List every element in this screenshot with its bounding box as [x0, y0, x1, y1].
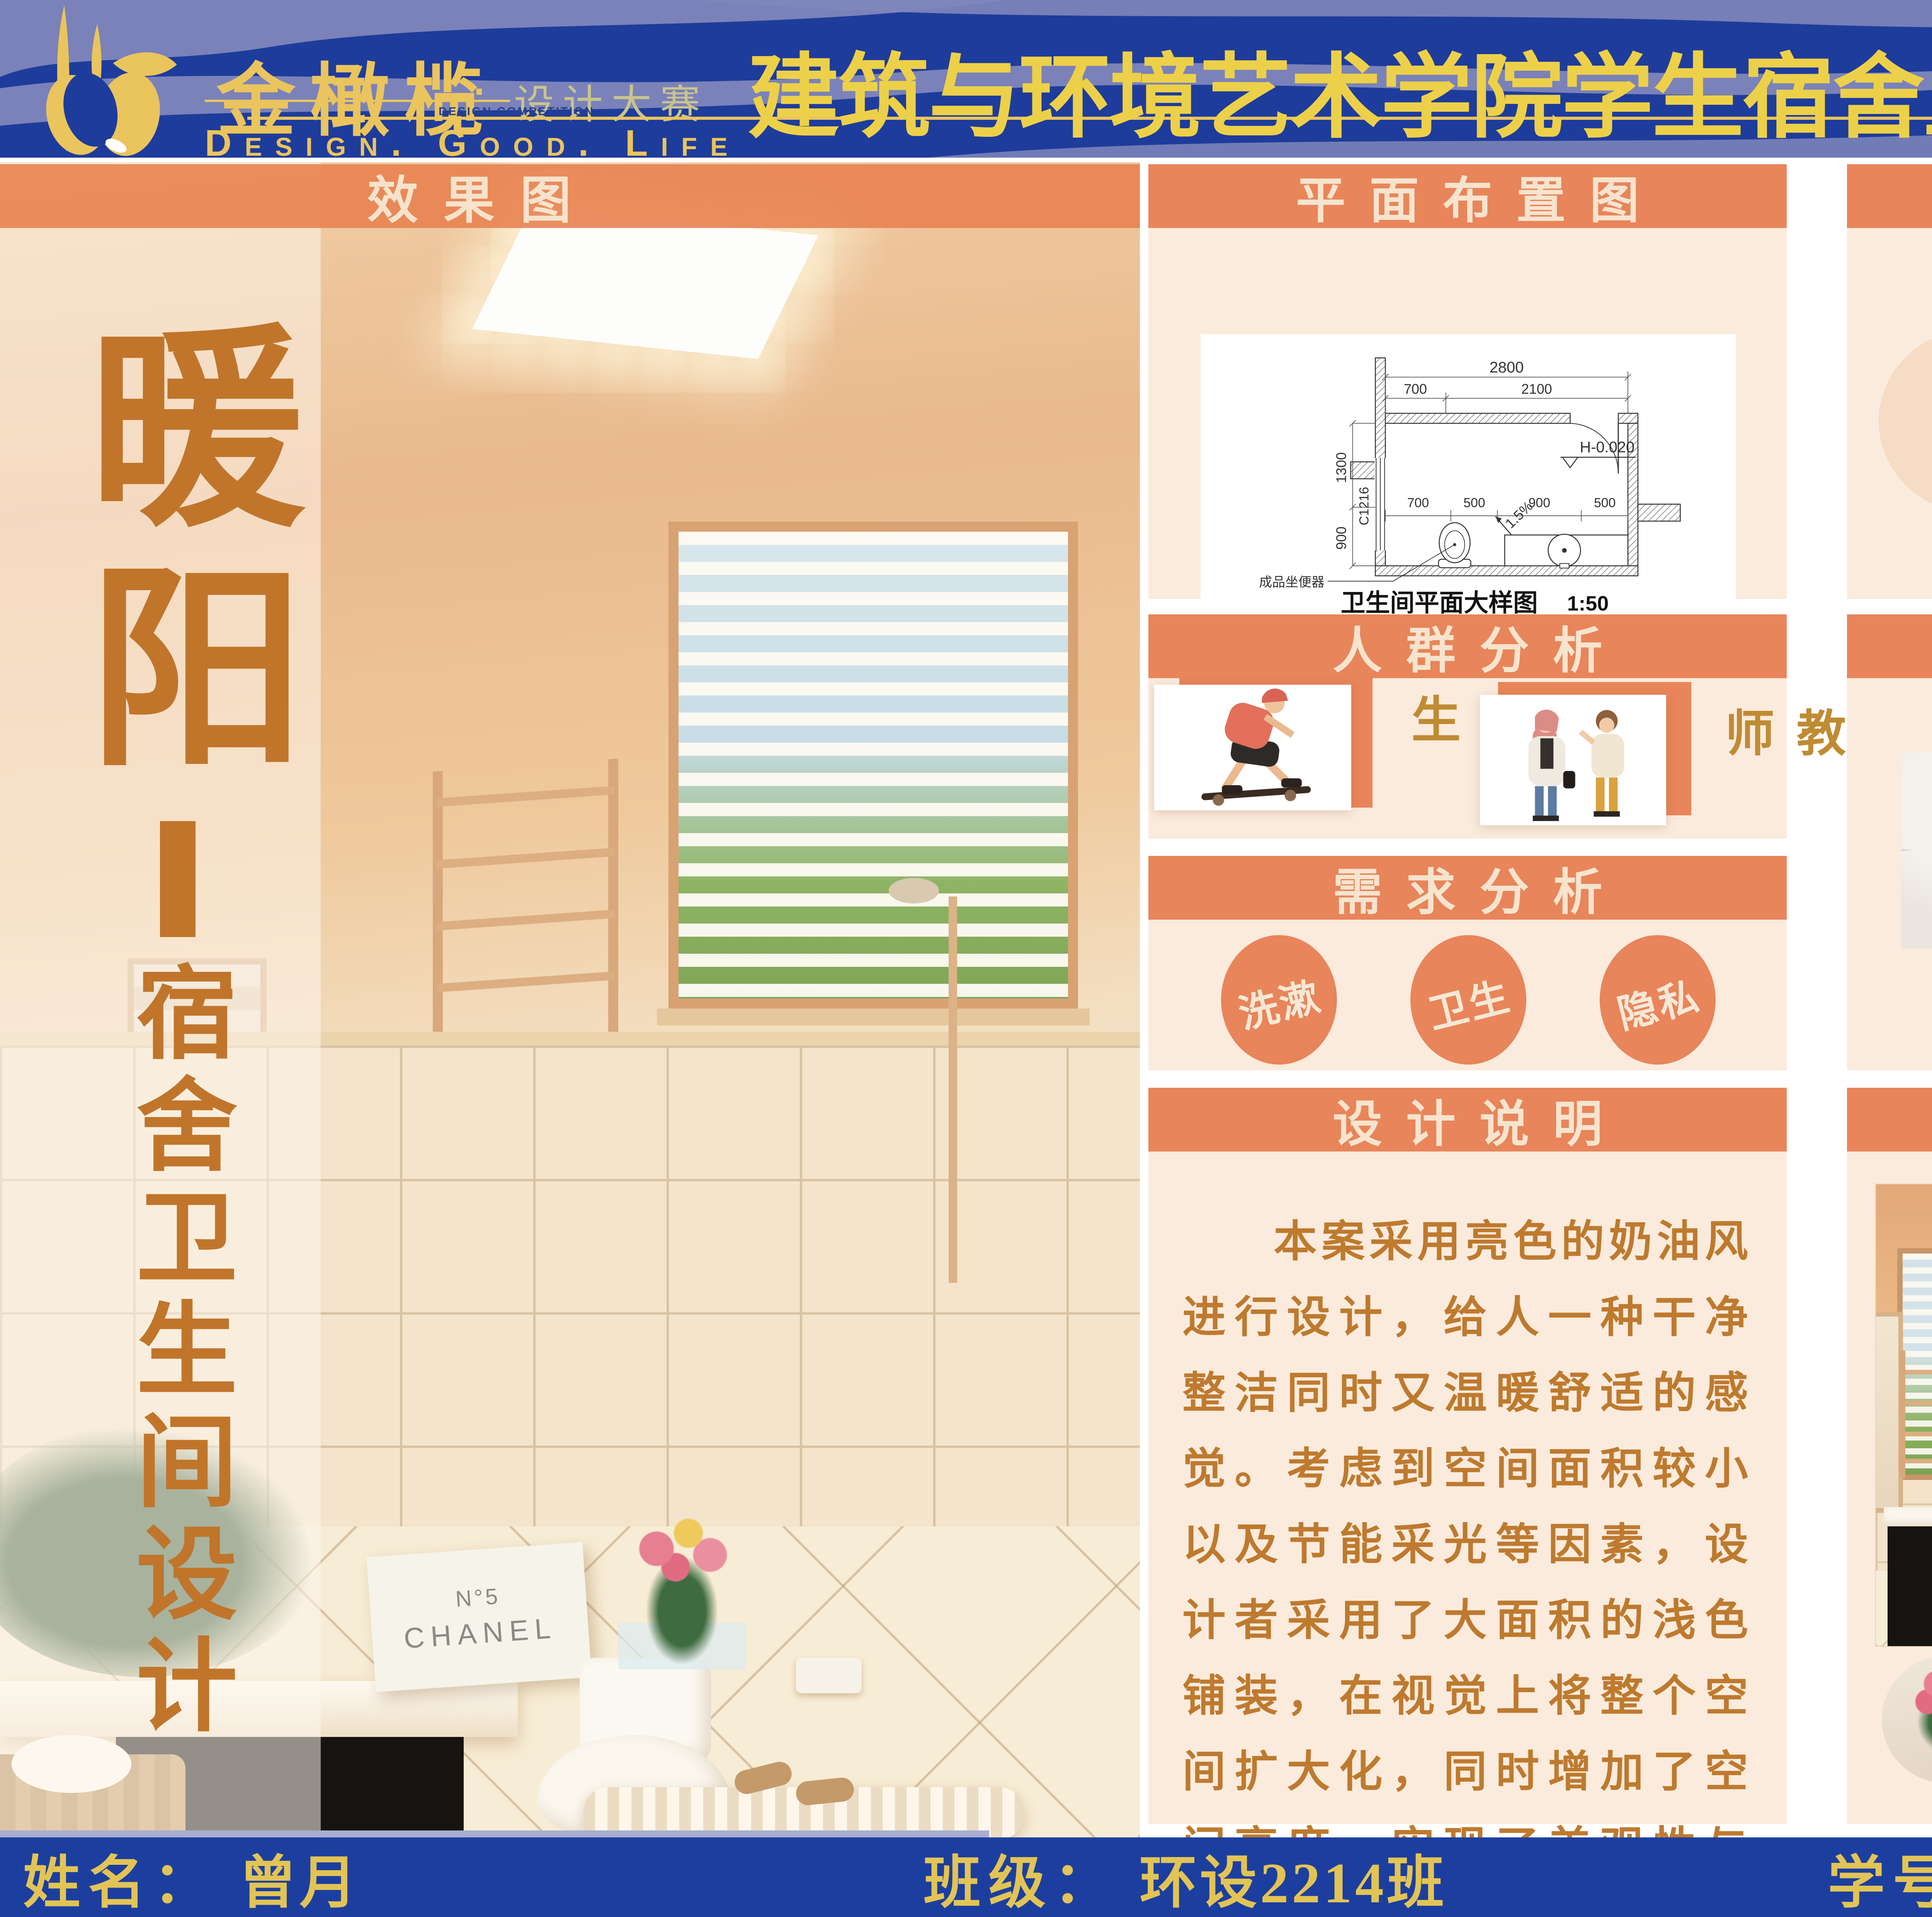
footer-class: 班级： 环设2214班: [923, 1837, 1447, 1917]
window-sill: [657, 1009, 1090, 1026]
render-view-1: [1876, 1184, 1932, 1646]
left-section-header-label: 效果图: [367, 162, 597, 233]
section-renders: 效果图: [1847, 1088, 1932, 1824]
needs-header: 需求分析: [1148, 856, 1787, 920]
floor-plan-header: 平面布置图: [1148, 164, 1787, 228]
perfume-box-line1: N°5: [455, 1583, 501, 1612]
logo-rule: [205, 100, 510, 102]
golden-olive-logo-icon: [15, 2, 197, 160]
title-dash: [160, 821, 196, 937]
class-value: 环设2214班: [1139, 1836, 1447, 1917]
competition-title: 建筑与环境艺术学院学生宿舍卫生间设计大赛: [748, 22, 1932, 156]
window-with-blinds: [668, 522, 1078, 1009]
renders-header: 效果图: [1847, 1088, 1932, 1152]
class-label: 班级：: [923, 1836, 1118, 1917]
perfume-box-line2: CHANEL: [403, 1611, 558, 1655]
main-render-photo: N°5 CHANEL 效果图 暖阳 宿舍卫生间设计: [0, 162, 1140, 1837]
need-bubble-privacy: 隐私: [1600, 935, 1716, 1065]
student-illustration: [1154, 685, 1351, 810]
flower-vase: [618, 1515, 746, 1669]
top-banner: 金橄榄 · 设计大赛 DESIGN COMPETITION Design. Go…: [0, 0, 1932, 162]
plan-inner-dim-2: 500: [1463, 496, 1485, 510]
description-header: 设计说明: [1148, 1088, 1787, 1152]
left-section-header: 效果图: [0, 164, 1140, 228]
footer-student-id: 学号： 202240393: [1828, 1837, 1932, 1917]
plan-window-label: C1216: [1357, 487, 1371, 526]
toilet-paper-holder: [796, 1658, 862, 1693]
material-header: 材质分析图: [1847, 614, 1932, 678]
plan-dim-side-lower: 900: [1334, 527, 1349, 550]
plan-dim-right: 2100: [1521, 381, 1552, 397]
plan-inner-dim-1: 700: [1407, 496, 1429, 510]
plan-dim-total: 2800: [1490, 359, 1524, 376]
title-main: 暖阳: [58, 315, 298, 794]
material-swatch-tile: [1901, 752, 1932, 949]
teacher-label: 教师: [1709, 707, 1852, 839]
poster-vertical-title: 暖阳 宿舍卫生间设计: [58, 315, 298, 1745]
shower-rail: [949, 896, 957, 1283]
teacher-illustration: [1480, 695, 1666, 825]
perfume-box: N°5 CHANEL: [366, 1542, 592, 1692]
need-bubble-washing: 洗漱: [1221, 935, 1337, 1065]
logo-subtitle: 设计大赛: [514, 71, 709, 130]
logo-subtitle-en: DESIGN COMPETITION: [439, 105, 595, 118]
floor-plan-drawing: C1216 H-0.020 2800: [1201, 334, 1736, 628]
student-id-label: 学号：: [1828, 1836, 1932, 1917]
description-text: 本案采用亮色的奶油风进行设计，给人一种干净整洁同时又温暖舒适的感觉。考虑到空间面…: [1148, 1152, 1787, 1824]
poster-board: 金橄榄 · 设计大赛 DESIGN COMPETITION Design. Go…: [0, 0, 1932, 1917]
crowd-header: 人群分析: [1148, 614, 1787, 678]
section-crowd-analysis: 人群分析 学生: [1148, 614, 1787, 839]
logo-tagline: Design. Good. Life: [205, 122, 741, 162]
section-floor-plan: 平面布置图: [1148, 164, 1787, 599]
material-label-tile: 瓷砖: [1901, 964, 1932, 1034]
name-value: 曾月: [239, 1836, 360, 1917]
plan-fixture-label: 成品坐便器: [1259, 575, 1325, 590]
section-color-analysis: 颜色分析图: [1847, 164, 1932, 599]
plan-level-label: H-0.020: [1580, 439, 1634, 456]
section-material-analysis: 材质分析图 瓷砖 大理石 乳胶漆: [1847, 614, 1932, 1070]
footer-name: 姓名： 曾月: [23, 1837, 360, 1917]
section-needs-analysis: 需求分析 洗漱 卫生 隐私: [1148, 856, 1787, 1070]
section-design-description: 设计说明 本案采用亮色的奶油风进行设计，给人一种干净整洁同时又温暖舒适的感觉。考…: [1148, 1088, 1787, 1824]
plan-dim-side-upper: 1300: [1334, 452, 1349, 483]
color-header: 颜色分析图: [1847, 164, 1932, 228]
need-bubble-hygiene: 卫生: [1410, 935, 1526, 1065]
title-sub: 宿舍卫生间设计: [120, 960, 236, 1745]
footer-bar: 姓名： 曾月 班级： 环设2214班 学号： 202240393: [0, 1837, 1932, 1917]
plan-inner-dim-4: 500: [1594, 496, 1616, 510]
name-label: 姓名：: [23, 1836, 218, 1917]
shower-head: [889, 878, 939, 903]
venetian-blinds: [679, 532, 1068, 998]
floor-plan-body: C1216 H-0.020 2800: [1148, 228, 1787, 599]
plan-dim-left: 700: [1404, 381, 1427, 397]
